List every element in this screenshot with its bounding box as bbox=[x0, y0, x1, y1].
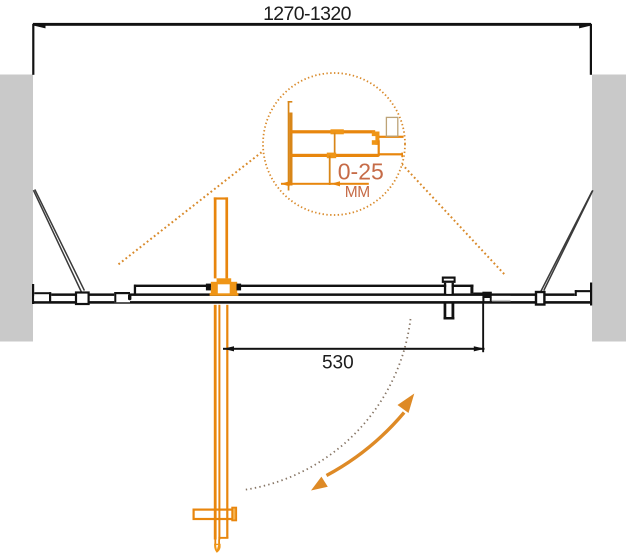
svg-text:0-25: 0-25 bbox=[338, 158, 384, 184]
svg-text:MM: MM bbox=[345, 184, 370, 201]
svg-text:530: 530 bbox=[322, 353, 354, 374]
svg-text:1270-1320: 1270-1320 bbox=[263, 3, 352, 25]
